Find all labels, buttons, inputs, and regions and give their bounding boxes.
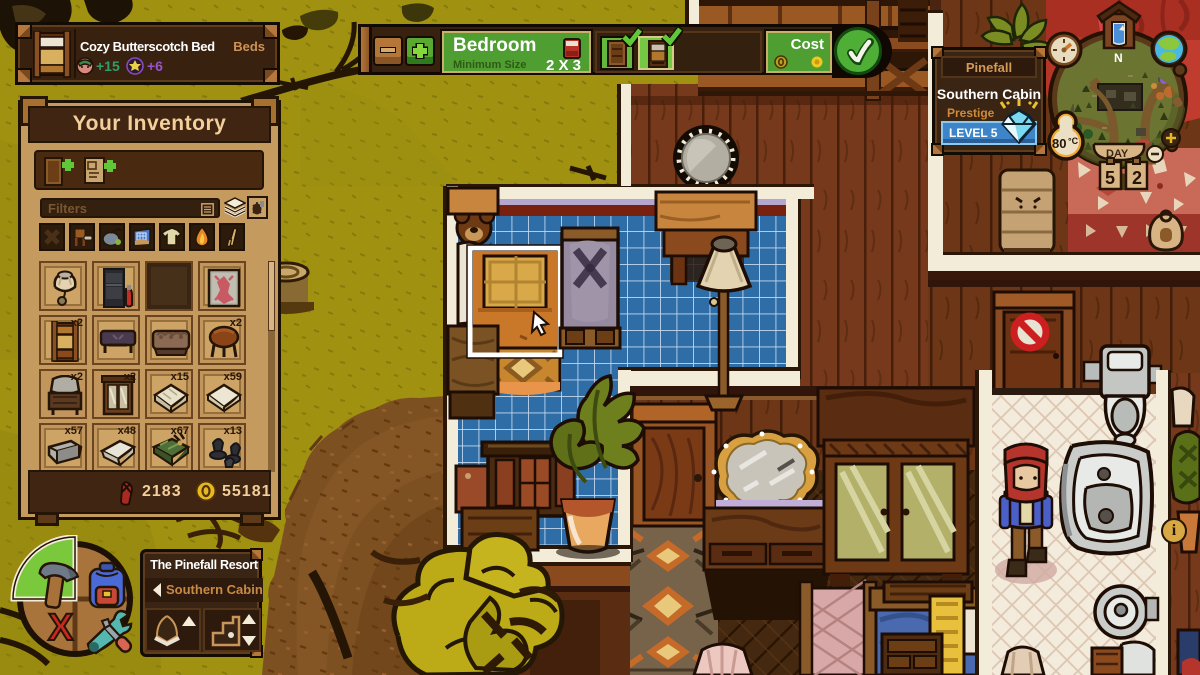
svg-text:2: 2 [1132, 168, 1142, 188]
svg-text:5: 5 [1105, 168, 1115, 188]
svg-text:N: N [1114, 51, 1123, 65]
svg-text:°C: °C [1068, 136, 1079, 146]
svg-text:80: 80 [1052, 136, 1066, 151]
svg-text:X: X [48, 607, 74, 649]
